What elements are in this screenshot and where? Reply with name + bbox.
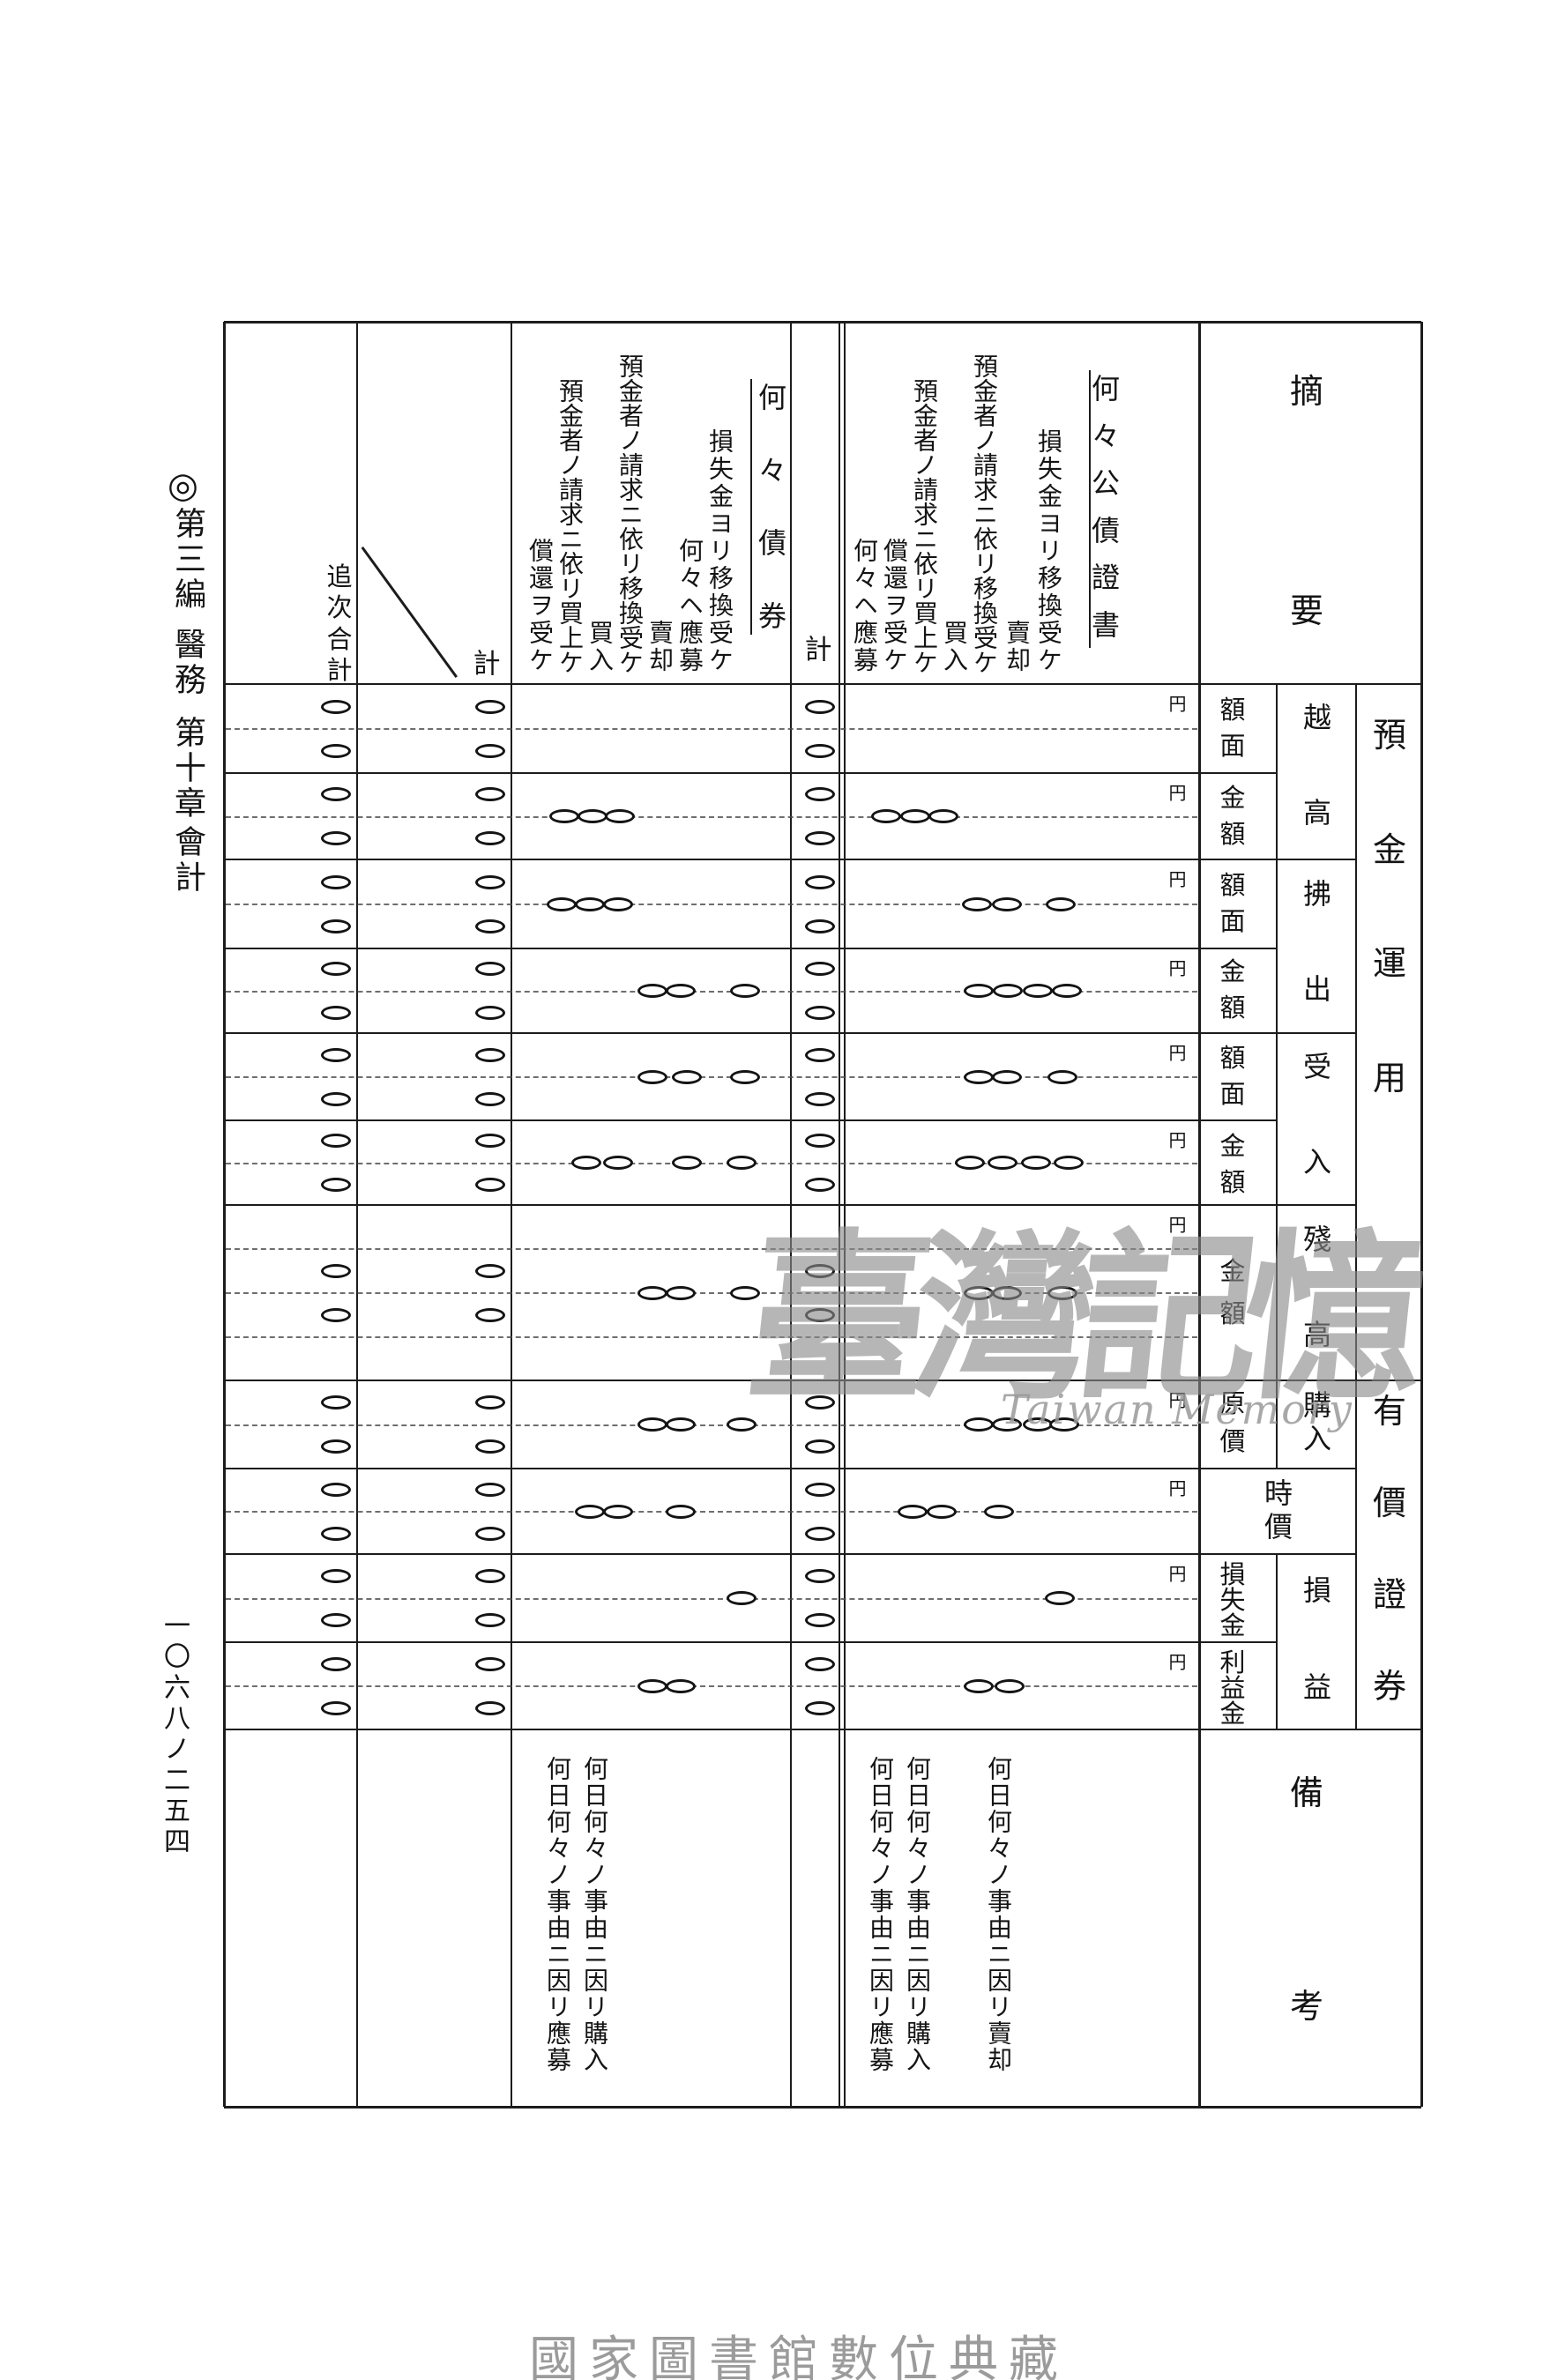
entry-circle-mark bbox=[805, 919, 835, 933]
section1-title-char: 々 bbox=[1092, 422, 1120, 450]
entry-circle-mark bbox=[321, 1264, 351, 1278]
section2-title-bracket bbox=[750, 379, 752, 635]
entry-circle-mark bbox=[475, 875, 505, 889]
entry-circle-mark bbox=[637, 1286, 667, 1300]
table-rule-horizontal bbox=[224, 772, 1277, 774]
amount-group-header-5-char: 價 bbox=[1264, 1513, 1293, 1541]
amount-cell-header-1-0: 額面 bbox=[1216, 873, 1250, 934]
section1-entry-2: 預金者ノ請求ニ依リ移換受ケ bbox=[972, 353, 996, 674]
entry-circle-mark bbox=[988, 1156, 1017, 1170]
amount-cell-header-1-1: 金額 bbox=[1216, 959, 1250, 1021]
entry-circle-mark bbox=[321, 1613, 351, 1627]
entry-circle-mark bbox=[321, 1569, 351, 1583]
amount-group-header-5: 時價 bbox=[1260, 1479, 1297, 1541]
amount-cell-header-6-1-char: 利 bbox=[1219, 1650, 1245, 1676]
amount-group-header-2-char: 受 bbox=[1303, 1052, 1331, 1081]
section2-title: 何々債券 bbox=[754, 383, 791, 630]
entry-circle-mark bbox=[805, 787, 835, 801]
entry-circle-mark bbox=[475, 1048, 505, 1062]
section2-entry-3: 預金者ノ請求ニ依リ移換受ケ bbox=[617, 353, 642, 674]
entry-circle-mark bbox=[727, 1156, 757, 1170]
cumulative-total-label-char: 追 bbox=[326, 564, 352, 590]
unit-mark: 円 bbox=[1167, 1653, 1185, 1670]
entry-circle-mark bbox=[475, 1701, 505, 1715]
section1-title-char: 公 bbox=[1092, 469, 1120, 497]
entry-circle-mark bbox=[321, 1527, 351, 1541]
amount-cell-header-6-1-char: 益 bbox=[1219, 1676, 1245, 1701]
section1-entry-3: 買入 bbox=[942, 620, 966, 674]
group-label-deposit-char: 用 bbox=[1373, 1061, 1406, 1095]
entry-circle-mark bbox=[730, 984, 760, 998]
entry-circle-mark bbox=[321, 1134, 351, 1148]
table-rule-horizontal bbox=[224, 948, 1277, 949]
table-rule-horizontal bbox=[224, 321, 1421, 324]
entry-circle-mark bbox=[321, 831, 351, 845]
group-label-securities: 有價證券 bbox=[1368, 1395, 1411, 1703]
entry-circle-mark bbox=[575, 1505, 605, 1519]
entry-circle-mark bbox=[898, 1505, 928, 1519]
entry-circle-mark bbox=[475, 1178, 505, 1192]
table-rule-horizontal bbox=[224, 1468, 1356, 1469]
entry-circle-mark bbox=[321, 875, 351, 889]
entry-circle-mark bbox=[805, 1483, 835, 1497]
unit-mark: 円 bbox=[1167, 695, 1185, 712]
section2-remark-1: 何日何々ノ事由ニ因リ應募 bbox=[545, 1756, 570, 2073]
summary-header-char: 摘 bbox=[1290, 375, 1323, 408]
entry-circle-mark bbox=[475, 744, 505, 758]
amount-group-header-0-char: 高 bbox=[1303, 799, 1331, 827]
entry-circle-mark bbox=[805, 1439, 835, 1454]
entry-circle-mark bbox=[992, 897, 1022, 911]
section2-entry-5: 預金者ノ請求ニ依リ買上ケ bbox=[557, 378, 582, 674]
cumulative-total-label: 追次合計 bbox=[323, 564, 357, 683]
unit-mark: 円 bbox=[1167, 1131, 1185, 1149]
section1-title-char: 何 bbox=[1092, 375, 1120, 403]
watermark-subtext: Taiwan Memory bbox=[1001, 1386, 1353, 1433]
table-rule-horizontal bbox=[224, 1032, 1356, 1034]
section1-remark-0: 何日何々ノ事由ニ因リ賣却 bbox=[986, 1756, 1010, 2073]
entry-circle-mark bbox=[805, 700, 835, 714]
amount-cell-header-0-1: 金額 bbox=[1216, 785, 1250, 847]
entry-circle-mark bbox=[1046, 897, 1076, 911]
section1-remark-2: 何日何々ノ事由ニ因リ應募 bbox=[868, 1756, 892, 2073]
entry-circle-mark bbox=[805, 875, 835, 889]
entry-circle-mark bbox=[321, 1657, 351, 1671]
page-number: 一〇六八ノ二五四 bbox=[160, 1611, 187, 1858]
entry-circle-mark bbox=[730, 1070, 760, 1084]
amount-cell-header-1-1-char: 金 bbox=[1219, 959, 1245, 985]
amount-cell-header-2-0-char: 面 bbox=[1219, 1082, 1245, 1107]
entry-circle-mark bbox=[475, 1395, 505, 1409]
entry-circle-mark bbox=[321, 1048, 351, 1062]
entry-circle-mark bbox=[1054, 1156, 1084, 1170]
summary-header: 摘要 bbox=[1286, 375, 1328, 628]
archive-caption: 國家圖書館數位典藏 bbox=[529, 2320, 1069, 2380]
table-rule-vertical bbox=[223, 322, 226, 2107]
entry-circle-mark bbox=[475, 1657, 505, 1671]
group-label-securities-char: 價 bbox=[1373, 1486, 1406, 1520]
entry-circle-mark bbox=[321, 787, 351, 801]
entry-circle-mark bbox=[475, 1092, 505, 1106]
group-label-deposit-char: 金 bbox=[1373, 833, 1406, 866]
side-note-division: 醫務 bbox=[171, 628, 203, 698]
amount-cell-header-6-0-char: 損 bbox=[1219, 1562, 1245, 1588]
table-rule-horizontal bbox=[224, 683, 1421, 686]
entry-circle-mark bbox=[475, 1569, 505, 1583]
amount-cell-header-0-0-char: 面 bbox=[1219, 733, 1245, 759]
amount-cell-header-0-0: 額面 bbox=[1216, 697, 1250, 759]
amount-group-header-6: 損益 bbox=[1299, 1576, 1336, 1701]
entry-circle-mark bbox=[805, 1569, 835, 1583]
entry-circle-mark bbox=[475, 962, 505, 976]
entry-circle-mark bbox=[805, 1092, 835, 1106]
entry-circle-mark bbox=[928, 809, 958, 823]
entry-circle-mark bbox=[475, 1006, 505, 1020]
entry-circle-mark bbox=[871, 809, 901, 823]
group-label-deposit-char: 運 bbox=[1373, 947, 1406, 980]
amount-cell-header-0-1-char: 額 bbox=[1219, 822, 1245, 847]
entry-circle-mark bbox=[1045, 1591, 1075, 1605]
side-note-chapter: 第十章 bbox=[171, 716, 203, 822]
entry-circle-mark bbox=[475, 1439, 505, 1454]
group-label-securities-char: 券 bbox=[1373, 1670, 1406, 1703]
entry-circle-mark bbox=[993, 984, 1023, 998]
section1-title-char: 債 bbox=[1092, 517, 1120, 545]
entry-circle-mark bbox=[321, 1178, 351, 1192]
amount-group-header-1-char: 拂 bbox=[1303, 880, 1331, 908]
entry-circle-mark bbox=[805, 962, 835, 976]
unit-mark: 円 bbox=[1167, 1044, 1185, 1061]
entry-circle-mark bbox=[805, 1527, 835, 1541]
scanned-ledger-page: ◎ 第三編 醫務 第十章 會計 一〇六八ノ二五四 摘要備考預金運用有價證券越高額… bbox=[0, 0, 1543, 2380]
entry-circle-mark bbox=[805, 831, 835, 845]
entry-circle-mark bbox=[603, 1505, 633, 1519]
entry-circle-mark bbox=[321, 1439, 351, 1454]
section1-entry-4: 預金者ノ請求ニ依リ買上ケ bbox=[912, 378, 936, 674]
remarks-header-char: 考 bbox=[1290, 1990, 1323, 2023]
table-rule-horizontal bbox=[224, 2106, 1421, 2109]
table-rule-vertical bbox=[511, 322, 512, 2107]
entry-circle-mark bbox=[321, 1006, 351, 1020]
entry-circle-mark bbox=[900, 809, 930, 823]
amount-cell-header-2-0-char: 額 bbox=[1219, 1045, 1245, 1071]
entry-circle-mark bbox=[666, 1417, 696, 1432]
entry-circle-mark bbox=[805, 744, 835, 758]
section2-entry-6: 償還ヲ受ケ bbox=[527, 538, 552, 674]
remarks-header-char: 備 bbox=[1290, 1776, 1323, 1810]
entry-circle-mark bbox=[637, 984, 667, 998]
summary-header-char: 要 bbox=[1290, 594, 1323, 628]
entry-circle-mark bbox=[603, 1156, 633, 1170]
entry-circle-mark bbox=[805, 1613, 835, 1627]
entry-circle-mark bbox=[666, 984, 696, 998]
entry-circle-mark bbox=[475, 1134, 505, 1148]
section2-title-char: 券 bbox=[758, 602, 786, 630]
section1-title: 何々公債證書 bbox=[1087, 375, 1124, 639]
entry-circle-mark bbox=[805, 1048, 835, 1062]
entry-circle-mark bbox=[603, 897, 633, 911]
entry-circle-mark bbox=[475, 700, 505, 714]
unit-mark: 円 bbox=[1167, 959, 1185, 977]
section1-title-char: 證 bbox=[1092, 563, 1120, 591]
entry-circle-mark bbox=[927, 1505, 957, 1519]
amount-cell-header-0-1-char: 金 bbox=[1219, 785, 1245, 811]
dashed-guide-line bbox=[226, 728, 1197, 730]
entry-circle-mark bbox=[672, 1070, 702, 1084]
side-note-volume: 第三編 bbox=[171, 507, 203, 613]
unit-mark: 円 bbox=[1167, 784, 1185, 801]
amount-cell-header-6-1-char: 金 bbox=[1219, 1701, 1245, 1727]
amount-group-header-6-char: 損 bbox=[1303, 1576, 1331, 1604]
amount-group-header-2: 受入 bbox=[1299, 1052, 1336, 1176]
amount-group-header-0: 越高 bbox=[1299, 703, 1336, 827]
section1-entry-5: 償還ヲ受ケ bbox=[882, 538, 906, 674]
entry-circle-mark bbox=[992, 1070, 1022, 1084]
entry-circle-mark bbox=[962, 897, 992, 911]
entry-circle-mark bbox=[955, 1156, 985, 1170]
cumulative-total-label-char: 次 bbox=[326, 595, 352, 621]
entry-circle-mark bbox=[321, 962, 351, 976]
section1-total-label: 計 bbox=[801, 635, 829, 662]
amount-cell-header-6-1: 利益金 bbox=[1216, 1650, 1250, 1719]
side-note-section: 會計 bbox=[171, 825, 203, 896]
entry-circle-mark bbox=[666, 1505, 696, 1519]
entry-circle-mark bbox=[575, 897, 605, 911]
entry-circle-mark bbox=[549, 809, 579, 823]
section1-entry-1: 賣却 bbox=[1004, 620, 1029, 674]
section1-entry-0: 損失金ヨリ移換受ケ bbox=[1036, 428, 1061, 674]
entry-circle-mark bbox=[666, 1286, 696, 1300]
empty-cell-slash bbox=[362, 547, 458, 678]
dashed-guide-line bbox=[226, 1511, 1197, 1513]
entry-circle-mark bbox=[475, 1264, 505, 1278]
section2-entry-1: 何々ヘ應募 bbox=[677, 538, 702, 674]
entry-circle-mark bbox=[637, 1679, 667, 1693]
entry-circle-mark bbox=[475, 1483, 505, 1497]
entry-circle-mark bbox=[321, 1701, 351, 1715]
amount-cell-header-6-0-char: 金 bbox=[1219, 1613, 1245, 1639]
group-label-deposit: 預金運用 bbox=[1368, 718, 1411, 1095]
entry-circle-mark bbox=[805, 1701, 835, 1715]
dashed-guide-line bbox=[226, 1685, 1197, 1687]
table-rule-horizontal bbox=[224, 1119, 1277, 1121]
entry-circle-mark bbox=[547, 897, 577, 911]
entry-circle-mark bbox=[321, 1308, 351, 1322]
section2-title-char: 債 bbox=[758, 529, 786, 557]
section1-remark-1: 何日何々ノ事由ニ因リ購入 bbox=[905, 1756, 929, 2073]
section2-entry-4: 買入 bbox=[587, 620, 612, 674]
entry-circle-mark bbox=[475, 1527, 505, 1541]
entry-circle-mark bbox=[578, 809, 608, 823]
entry-circle-mark bbox=[321, 919, 351, 933]
entry-circle-mark bbox=[984, 1505, 1014, 1519]
table-rule-horizontal bbox=[224, 1553, 1356, 1555]
amount-group-header-6-char: 益 bbox=[1303, 1673, 1331, 1701]
section2-remark-0: 何日何々ノ事由ニ因リ購入 bbox=[582, 1756, 607, 2073]
entry-circle-mark bbox=[672, 1156, 702, 1170]
amount-cell-header-0-0-char: 額 bbox=[1219, 697, 1245, 723]
entry-circle-mark bbox=[321, 1092, 351, 1106]
entry-circle-mark bbox=[321, 1483, 351, 1497]
unit-mark: 円 bbox=[1167, 1479, 1185, 1497]
amount-cell-header-2-1-char: 金 bbox=[1219, 1134, 1245, 1159]
section1-entry-6: 何々ヘ應募 bbox=[852, 538, 876, 674]
table-rule-horizontal bbox=[224, 1641, 1277, 1643]
entry-circle-mark bbox=[475, 1308, 505, 1322]
table-rule-horizontal bbox=[224, 1729, 1421, 1730]
amount-cell-header-2-0: 額面 bbox=[1216, 1045, 1250, 1107]
entry-circle-mark bbox=[605, 809, 635, 823]
entry-circle-mark bbox=[475, 831, 505, 845]
entry-circle-mark bbox=[805, 1006, 835, 1020]
circle-mark: ◎ bbox=[168, 465, 198, 506]
entry-circle-mark bbox=[1052, 984, 1082, 998]
grand-total-label: 計 bbox=[470, 649, 497, 676]
entry-circle-mark bbox=[1047, 1070, 1077, 1084]
section2-title-char: 何 bbox=[758, 383, 786, 412]
unit-mark: 円 bbox=[1167, 870, 1185, 888]
amount-group-header-1: 拂出 bbox=[1299, 880, 1336, 1003]
amount-group-header-0-char: 越 bbox=[1303, 703, 1331, 732]
entry-circle-mark bbox=[637, 1417, 667, 1432]
entry-circle-mark bbox=[475, 787, 505, 801]
entry-circle-mark bbox=[571, 1156, 601, 1170]
entry-circle-mark bbox=[1023, 984, 1053, 998]
entry-circle-mark bbox=[727, 1591, 757, 1605]
amount-cell-header-1-1-char: 額 bbox=[1219, 995, 1245, 1021]
amount-group-header-1-char: 出 bbox=[1303, 975, 1331, 1003]
entry-circle-mark bbox=[637, 1070, 667, 1084]
dashed-guide-line bbox=[226, 1163, 1197, 1164]
amount-group-header-5-char: 時 bbox=[1264, 1479, 1293, 1507]
amount-cell-header-6-0-char: 失 bbox=[1219, 1588, 1245, 1613]
section2-entry-0: 損失金ヨリ移換受ケ bbox=[707, 428, 732, 674]
entry-circle-mark bbox=[964, 1679, 994, 1693]
entry-circle-mark bbox=[321, 1395, 351, 1409]
group-label-deposit-char: 預 bbox=[1373, 718, 1406, 752]
entry-circle-mark bbox=[475, 1613, 505, 1627]
cumulative-total-label-char: 計 bbox=[326, 658, 352, 683]
remarks-header: 備考 bbox=[1286, 1776, 1328, 2023]
entry-circle-mark bbox=[475, 919, 505, 933]
cumulative-total-label-char: 合 bbox=[326, 627, 352, 652]
entry-circle-mark bbox=[805, 1657, 835, 1671]
entry-circle-mark bbox=[321, 700, 351, 714]
amount-cell-header-6-0: 損失金 bbox=[1216, 1562, 1250, 1631]
entry-circle-mark bbox=[805, 1134, 835, 1148]
unit-mark: 円 bbox=[1167, 1565, 1185, 1582]
entry-circle-mark bbox=[321, 744, 351, 758]
group-label-securities-char: 證 bbox=[1373, 1578, 1406, 1611]
entry-circle-mark bbox=[666, 1679, 696, 1693]
section2-entry-2: 賣却 bbox=[647, 620, 672, 674]
entry-circle-mark bbox=[964, 984, 994, 998]
amount-cell-header-1-0-char: 面 bbox=[1219, 909, 1245, 934]
section1-title-char: 書 bbox=[1092, 611, 1120, 639]
dashed-guide-line bbox=[226, 816, 1197, 818]
entry-circle-mark bbox=[1021, 1156, 1051, 1170]
table-rule-vertical bbox=[1420, 322, 1423, 2107]
table-rule-horizontal bbox=[224, 859, 1356, 860]
amount-cell-header-1-0-char: 額 bbox=[1219, 873, 1245, 898]
entry-circle-mark bbox=[964, 1070, 994, 1084]
section2-title-char: 々 bbox=[758, 457, 786, 485]
entry-circle-mark bbox=[995, 1679, 1025, 1693]
